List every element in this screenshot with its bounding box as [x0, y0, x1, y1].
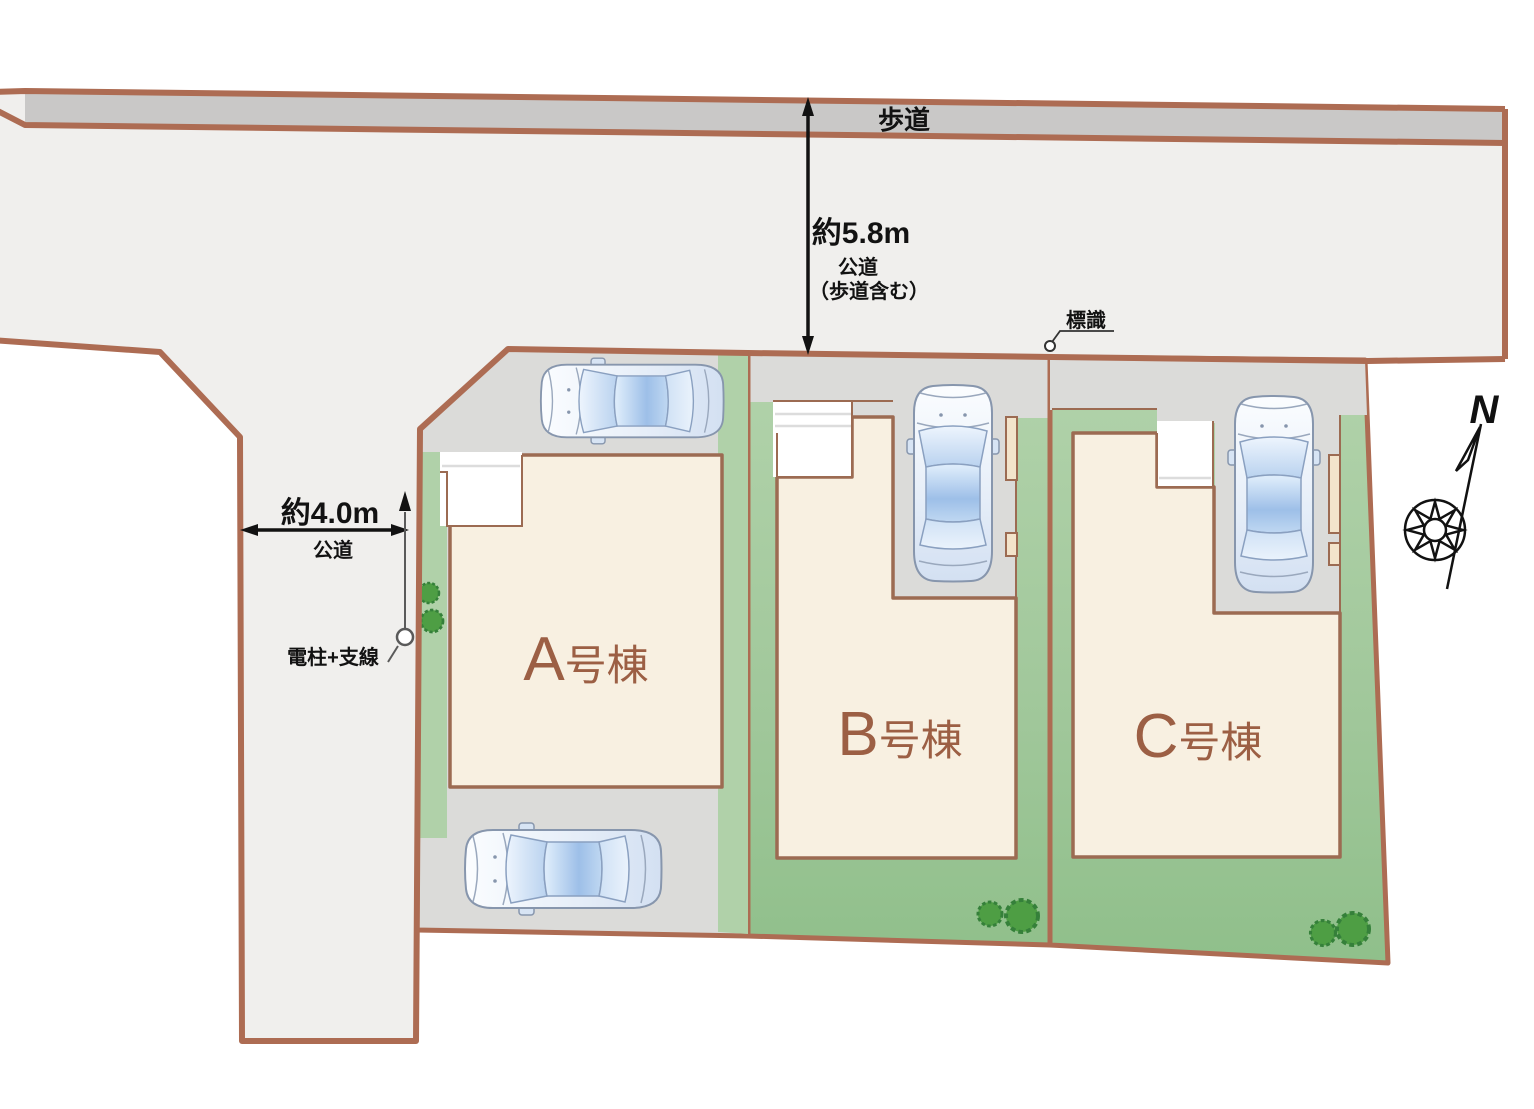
sign-marker	[1045, 341, 1055, 351]
tree-a-1	[419, 583, 439, 603]
car-lot-c	[1228, 396, 1320, 593]
lot-c-fence	[1329, 455, 1340, 533]
tree-b-1	[978, 902, 1002, 926]
tree-a-2	[421, 610, 443, 632]
tree-b-2	[1006, 900, 1038, 932]
site-plan: B号棟 C号棟 A号棟	[0, 0, 1534, 1109]
front-road-type: 公道	[838, 255, 878, 279]
compass-north-label: N	[1470, 388, 1500, 432]
utility-pole-label: 電柱+支線	[287, 645, 379, 669]
tree-c-2	[1337, 913, 1369, 945]
tree-c-1	[1311, 921, 1336, 946]
front-road-note: （歩道含む）	[809, 279, 929, 303]
side-road-type: 公道	[313, 538, 353, 562]
lot-b: B号棟	[748, 353, 1050, 945]
lot-a-porch	[440, 452, 522, 526]
lot-a: A号棟	[415, 349, 748, 936]
lot-c: C号棟	[1050, 357, 1388, 963]
sidewalk-label: 歩道	[878, 105, 930, 135]
lot-b-fence	[1006, 417, 1017, 480]
lot-c-fence-2	[1329, 543, 1340, 565]
car-lot-a-top	[541, 358, 724, 444]
utility-pole-marker	[397, 629, 413, 645]
car-lot-a-bottom	[465, 823, 662, 915]
car-lot-b	[907, 385, 999, 582]
front-road-width: 約5.8m	[812, 217, 910, 250]
side-road-width: 約4.0m	[281, 497, 379, 530]
sign-label: 標識	[1066, 308, 1106, 332]
lot-b-fence-2	[1006, 533, 1017, 556]
